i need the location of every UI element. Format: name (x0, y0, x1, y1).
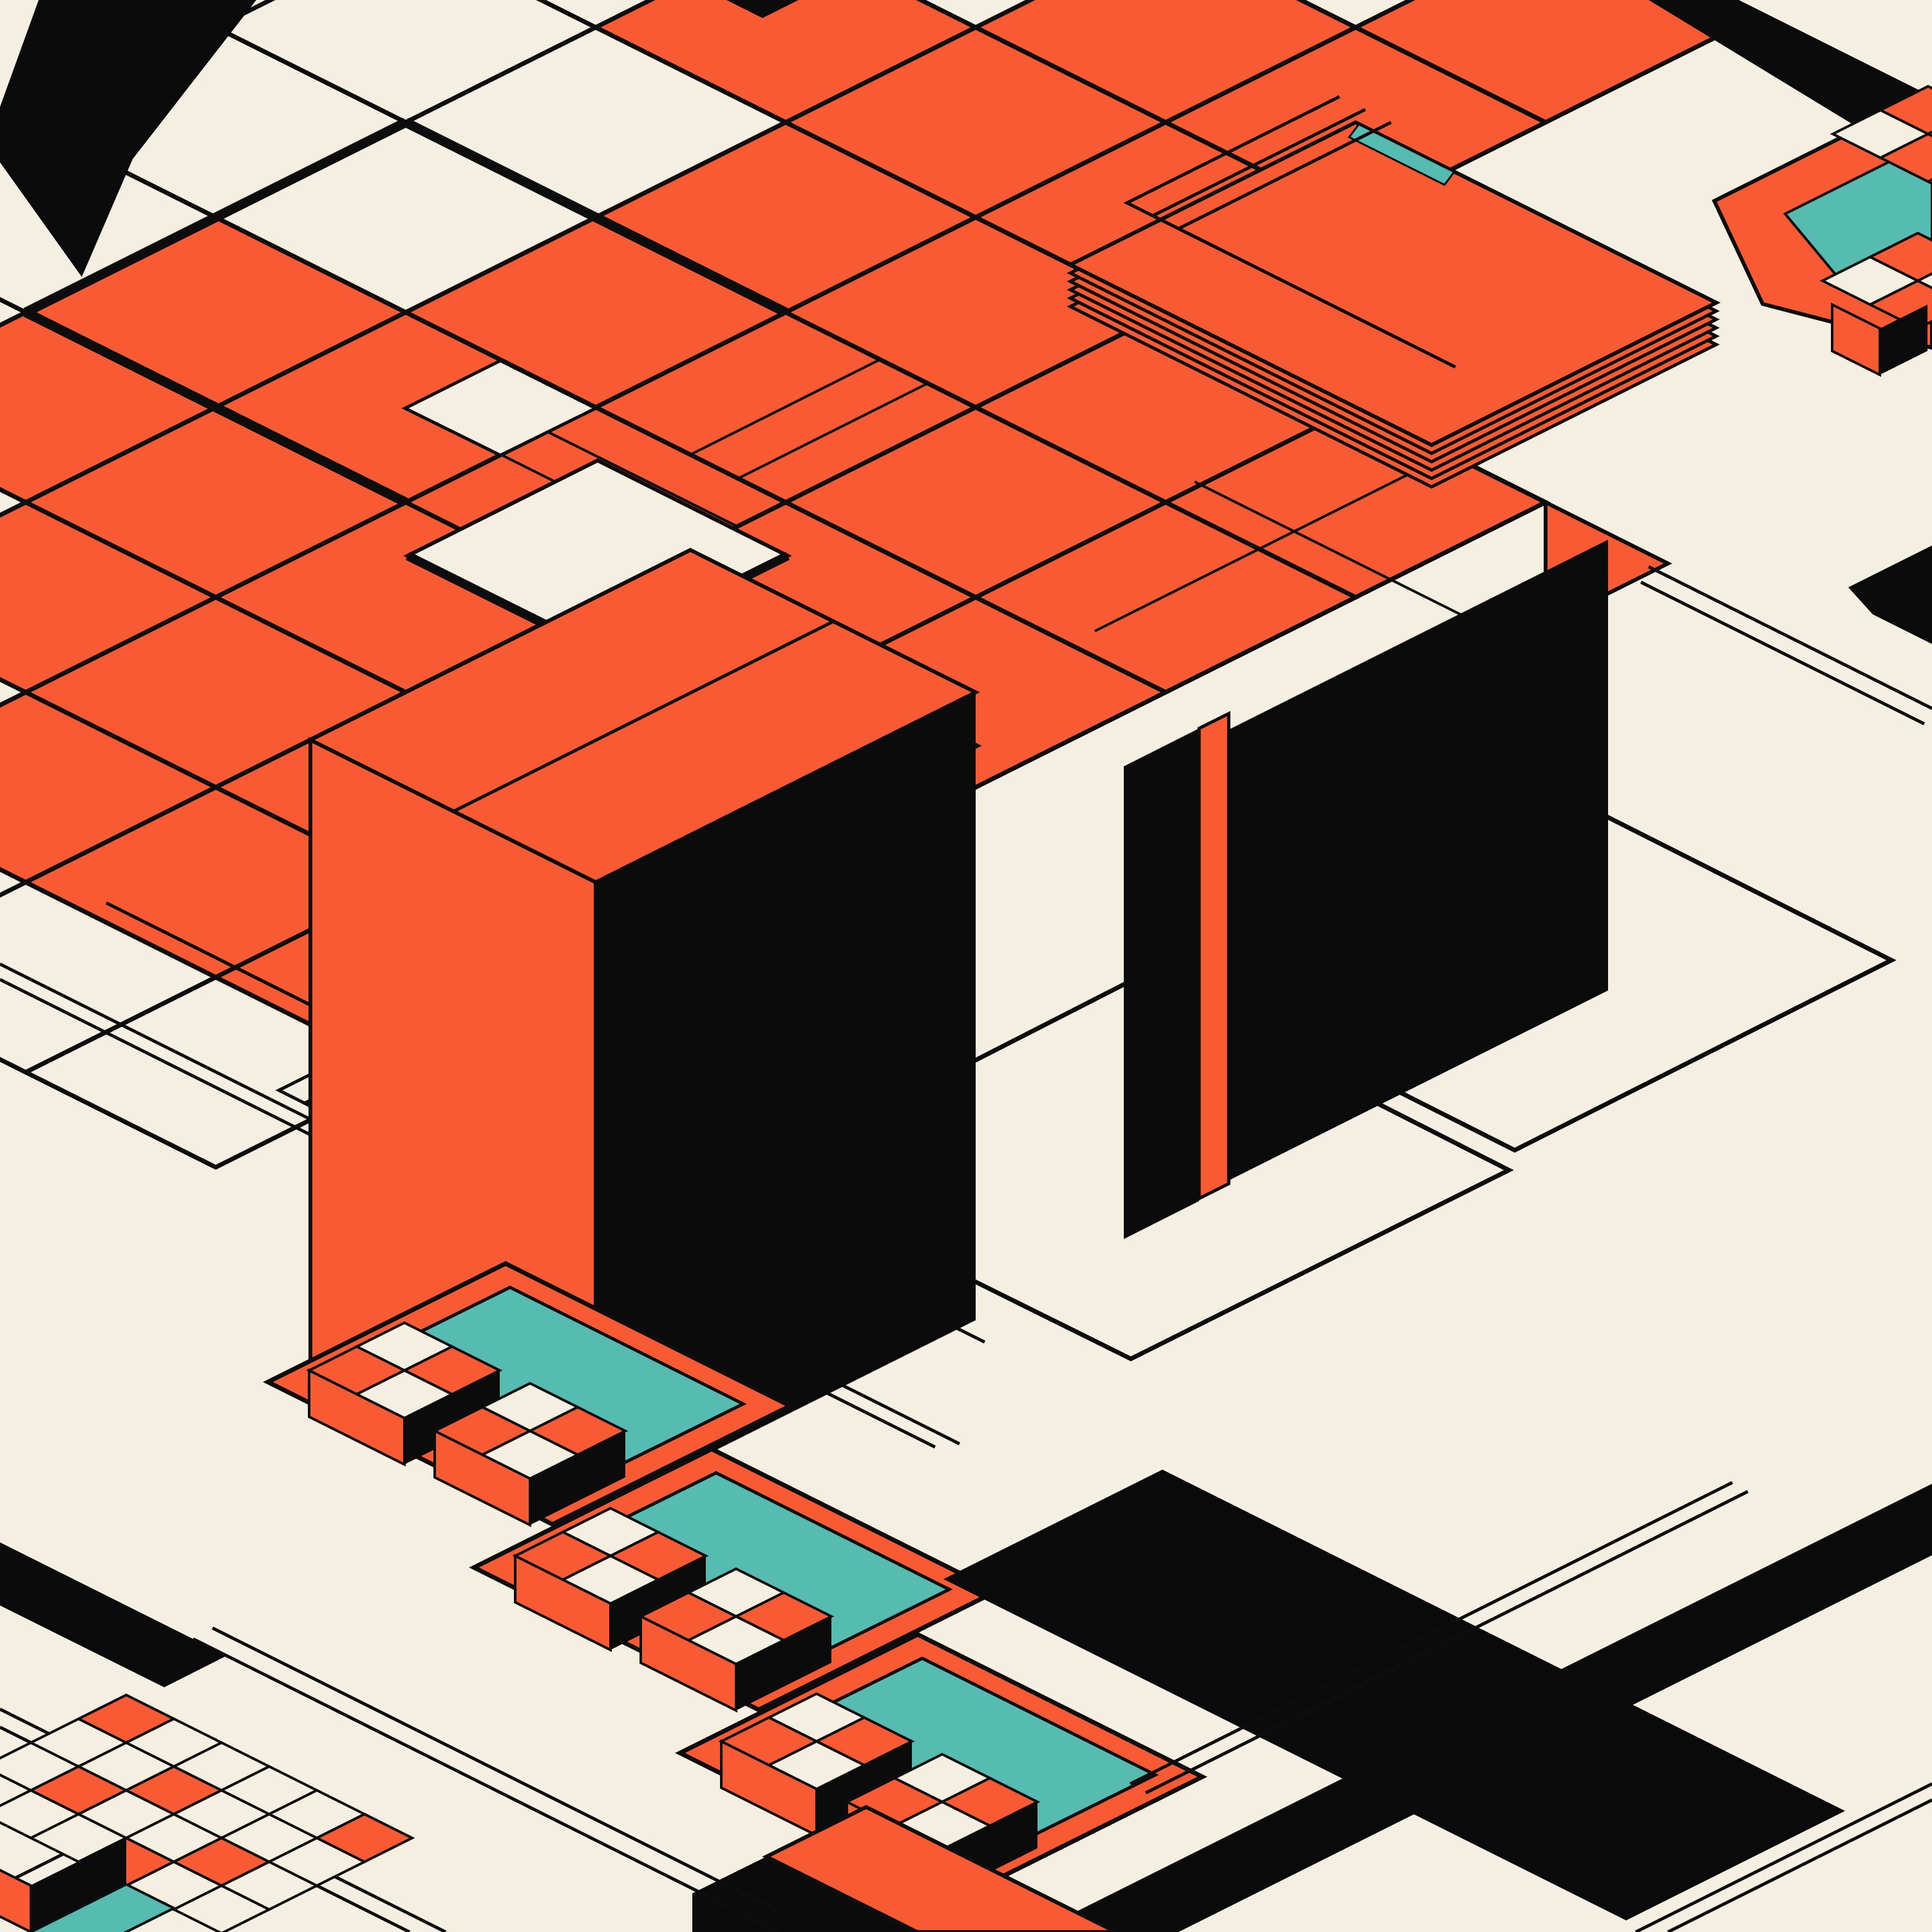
black-street-segment (1848, 545, 1932, 644)
black-street-X-arm (943, 1470, 1845, 1920)
tower2-left-face (1199, 714, 1229, 1198)
isometric-artwork (0, 0, 1932, 1932)
black-wedge-left (0, 1542, 227, 1687)
tower2-shadow-band (1124, 728, 1199, 1239)
